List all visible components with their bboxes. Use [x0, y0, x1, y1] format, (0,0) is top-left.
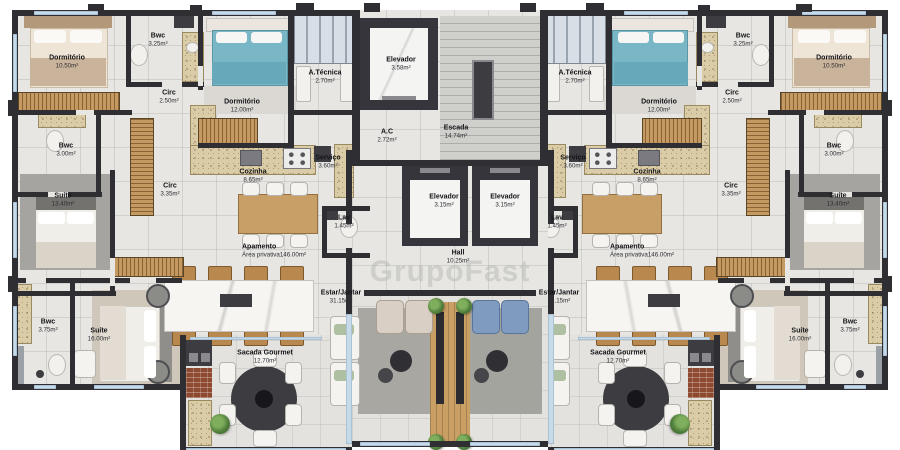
- glass-partition: [294, 10, 354, 64]
- room-label-circ: Circ2.50m²: [159, 88, 178, 105]
- bed-pillow: [798, 30, 830, 43]
- elevator-door: [382, 96, 416, 100]
- stove: [589, 148, 617, 169]
- dining-table: [582, 194, 662, 234]
- room-label-lav: Lav1.45m²: [547, 213, 566, 230]
- bed-pillow: [744, 310, 756, 342]
- bed-headboard: [24, 16, 112, 28]
- coffee-table: [378, 368, 393, 383]
- elevator-door: [490, 168, 520, 173]
- bbq-cabinet: [186, 340, 212, 366]
- bed-blanket: [36, 242, 96, 268]
- wardrobe: [110, 257, 184, 277]
- chair: [280, 266, 304, 281]
- table-tray: [648, 294, 680, 307]
- room-label-suite: Suíte16.00m²: [88, 326, 111, 343]
- chair: [664, 362, 681, 384]
- room-label-escada: Escada14.74m²: [444, 123, 469, 140]
- glass-partition: [546, 10, 606, 64]
- apartment-area-label: ApamentoÁrea privativa146.00m²: [610, 242, 674, 259]
- coffee-table: [474, 368, 489, 383]
- table-grill: [255, 390, 273, 408]
- chair: [598, 404, 615, 426]
- chair: [592, 182, 610, 196]
- chair: [596, 266, 620, 281]
- planter: [436, 312, 444, 404]
- room-label-elevador: Elevador3.58m²: [386, 55, 416, 72]
- chair: [253, 430, 277, 447]
- planter: [456, 312, 464, 404]
- wardrobe: [130, 118, 154, 216]
- plant-icon: [210, 414, 230, 434]
- room-label-bwc: Bwc3.25m²: [148, 31, 167, 48]
- room-label-ac: A.C2.72m²: [377, 127, 396, 144]
- room-label-suite: Suíte13.40m²: [52, 191, 75, 208]
- stair-rail: [472, 60, 494, 120]
- chair: [219, 362, 236, 384]
- room-label-servico: Serviço3.60m²: [560, 153, 585, 170]
- vanity-counter: [38, 114, 86, 128]
- room-label-dormitorio: Dormitório10.50m²: [49, 53, 85, 70]
- room-label-circ: Circ2.50m²: [722, 88, 741, 105]
- room-label-suite: Suíte16.00m²: [789, 326, 812, 343]
- pillar: [698, 5, 710, 12]
- room-label-lav: Lav1.45m²: [334, 213, 353, 230]
- armchair-blue: [501, 300, 529, 334]
- room-label-sacada-gourmet: Sacada Gourmet12.70m²: [237, 348, 293, 365]
- bed-pillow: [70, 30, 102, 43]
- plant-icon: [670, 414, 690, 434]
- side-table: [730, 284, 754, 308]
- chair: [266, 182, 284, 196]
- pillar: [586, 3, 604, 12]
- room-label-cozinha: Cozinha8.65m²: [239, 167, 266, 184]
- room-label-bwc: Bwc3.00m²: [824, 141, 843, 158]
- pillar: [796, 4, 812, 12]
- toilet: [752, 44, 770, 66]
- chair: [244, 266, 268, 281]
- lounge-chair: [330, 316, 360, 360]
- pillar: [364, 3, 380, 12]
- room-label-bwc: Bwc3.75m²: [840, 317, 859, 334]
- pillar: [8, 276, 16, 292]
- pillar: [884, 276, 892, 292]
- room-label-cozinha: Cozinha8.65m²: [633, 167, 660, 184]
- coffee-table: [486, 350, 508, 372]
- sink: [701, 42, 714, 53]
- bed-pillow: [34, 30, 66, 43]
- gourmet-counter: [188, 400, 212, 446]
- pillar: [8, 100, 16, 116]
- room-label-circ: Circ3.35m²: [160, 181, 179, 198]
- toilet: [834, 354, 852, 376]
- chair: [290, 182, 308, 196]
- apartment-right: [548, 10, 888, 447]
- room-label-estar-jantar: Estar/Jantar31.15m²: [539, 288, 579, 305]
- bbq-grill-brick: [186, 368, 212, 398]
- bed-pillow: [67, 212, 94, 224]
- bbq-grill-brick: [688, 368, 714, 398]
- armchair-beige: [376, 300, 404, 334]
- bed-pillow: [144, 310, 156, 342]
- plant-icon: [428, 298, 444, 314]
- room-label-bwc: Bwc3.00m²: [56, 141, 75, 158]
- room-label-hall: Hall10.25m²: [447, 248, 470, 265]
- bed-pillow: [653, 32, 684, 43]
- room-label-area-tecnica: A.Técnica2.70m²: [308, 68, 341, 85]
- room-label-bwc: Bwc3.75m²: [38, 317, 57, 334]
- bed-pillow: [251, 32, 282, 43]
- bed-headboard: [788, 16, 876, 28]
- floor-plan: GrupoFast Dormitório10.50m² Bwc3.25m² Ci…: [0, 0, 900, 450]
- armchair: [74, 350, 96, 378]
- central-core: [352, 10, 548, 447]
- chair: [632, 266, 656, 281]
- vanity-counter: [814, 114, 862, 128]
- room-label-sacada-gourmet: Sacada Gourmet12.70m²: [590, 348, 646, 365]
- apartment-area-label: ApamentoÁrea privativa146.00m²: [242, 242, 306, 259]
- toilet: [48, 354, 66, 376]
- toilet: [130, 44, 148, 66]
- table-tray: [220, 294, 252, 307]
- chair: [592, 234, 610, 248]
- armchair-blue: [472, 300, 500, 334]
- kitchen-sink: [638, 150, 660, 166]
- room-label-dormitorio: Dormitório12.00m²: [641, 97, 677, 114]
- bed-blanket: [614, 62, 688, 84]
- room-label-circ: Circ3.35m²: [721, 181, 740, 198]
- shower-drain: [856, 370, 864, 378]
- chair: [623, 430, 647, 447]
- stove: [283, 148, 311, 169]
- chair: [208, 266, 232, 281]
- room-label-servico: Serviço3.60m²: [315, 153, 340, 170]
- chair: [616, 182, 634, 196]
- room-label-estar-jantar: Estar/Jantar31.15m²: [321, 288, 361, 305]
- gourmet-counter: [688, 400, 712, 446]
- room-label-suite: Suíte13.40m²: [827, 191, 850, 208]
- elevator-door: [420, 168, 450, 173]
- table-grill: [627, 390, 645, 408]
- bed-pillow: [38, 212, 65, 224]
- side-table: [146, 284, 170, 308]
- wardrobe: [642, 118, 702, 145]
- bbq-cabinet: [688, 340, 714, 366]
- room-label-area-tecnica: A.Técnica2.70m²: [558, 68, 591, 85]
- pillar: [296, 3, 314, 12]
- room-label-elevador: Elevador3.15m²: [429, 192, 459, 209]
- wardrobe: [716, 257, 790, 277]
- bed-pillow: [806, 212, 833, 224]
- coffee-table: [390, 350, 412, 372]
- room-label-dormitorio: Dormitório12.00m²: [224, 97, 260, 114]
- lounge-chair: [330, 362, 360, 406]
- plant-icon: [456, 298, 472, 314]
- bed-pillow: [144, 346, 156, 378]
- chair: [668, 266, 692, 281]
- kitchen-sink: [240, 150, 262, 166]
- bed-pillow: [835, 212, 862, 224]
- bed-blanket: [804, 242, 864, 268]
- bed-pillow: [618, 32, 649, 43]
- bed-pillow: [834, 30, 866, 43]
- pillar: [520, 3, 536, 12]
- wardrobe: [746, 118, 770, 216]
- room-label-dormitorio: Dormitório10.50m²: [816, 53, 852, 70]
- bed-pillow: [744, 346, 756, 378]
- shower-drain: [36, 370, 44, 378]
- room-label-bwc: Bwc3.25m²: [733, 31, 752, 48]
- chair: [285, 404, 302, 426]
- apartment-left: [12, 10, 352, 447]
- armchair: [804, 350, 826, 378]
- wardrobe: [198, 118, 258, 145]
- pillar: [884, 100, 892, 116]
- dining-table: [238, 194, 318, 234]
- pillar: [190, 5, 202, 12]
- room-label-elevador: Elevador3.15m²: [490, 192, 520, 209]
- bed-blanket: [212, 62, 286, 84]
- bed-pillow: [216, 32, 247, 43]
